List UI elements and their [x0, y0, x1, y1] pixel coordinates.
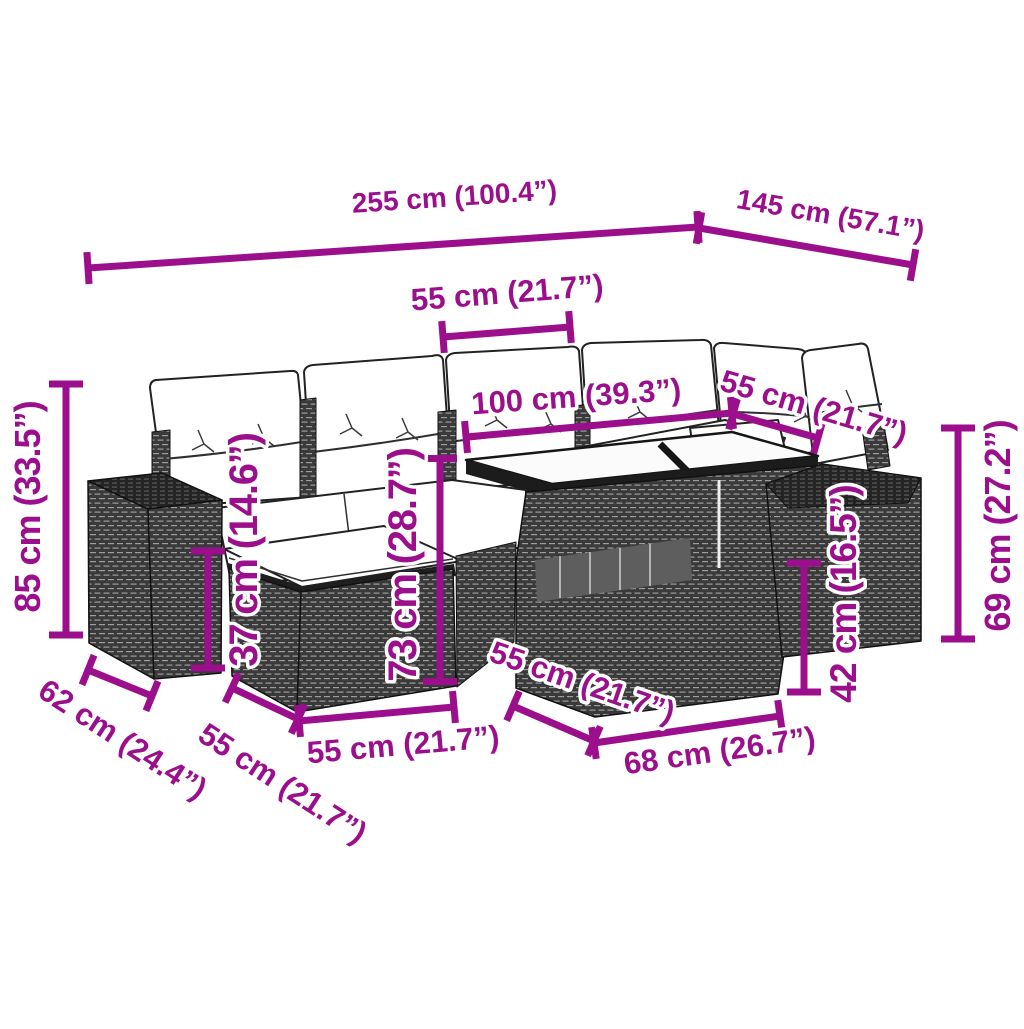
svg-text:42 cm (16.5”): 42 cm (16.5”)	[823, 485, 864, 702]
svg-text:37 cm (14.6”): 37 cm (14.6”)	[222, 433, 266, 666]
svg-text:73 cm (28.7”): 73 cm (28.7”)	[381, 448, 425, 681]
svg-text:69 cm (27.2”): 69 cm (27.2”)	[977, 420, 1018, 631]
svg-text:85 cm (33.5”): 85 cm (33.5”)	[7, 401, 48, 612]
